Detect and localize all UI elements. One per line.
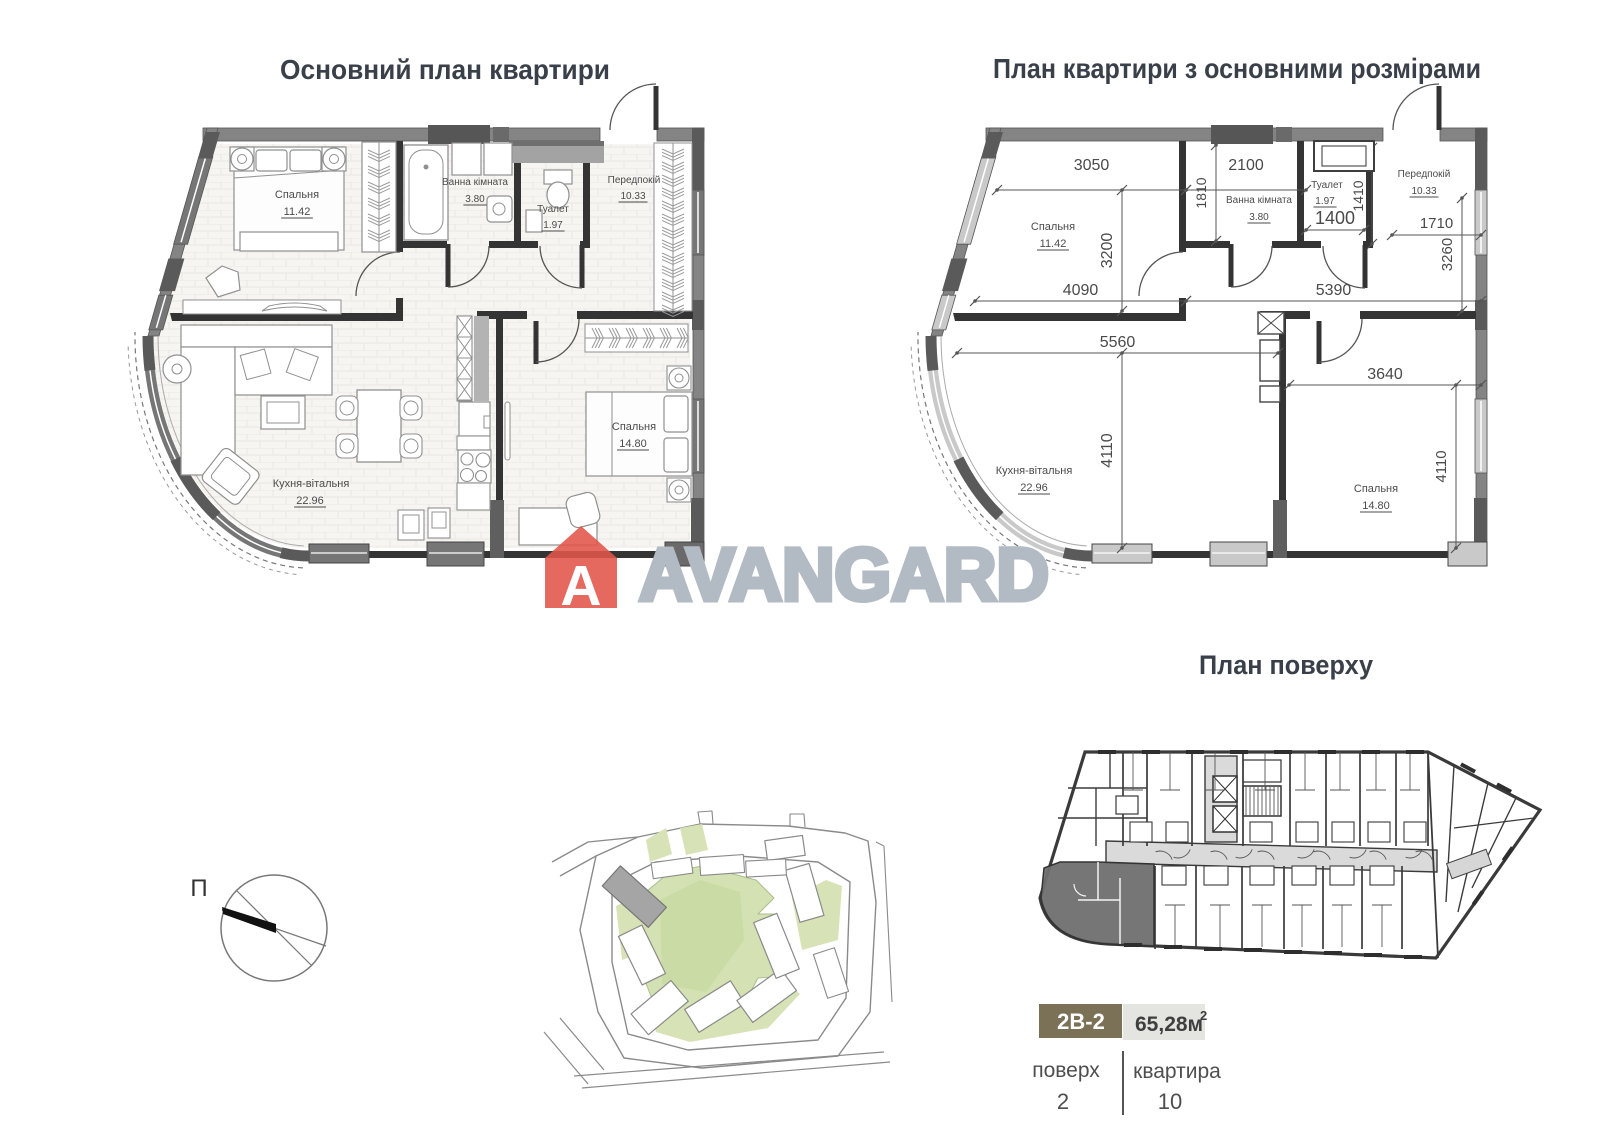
svg-text:11.42: 11.42: [284, 206, 311, 218]
svg-text:П: П: [190, 875, 207, 902]
svg-text:3260: 3260: [1439, 238, 1456, 271]
svg-text:2100: 2100: [1228, 157, 1264, 174]
svg-text:4110: 4110: [1099, 433, 1116, 468]
svg-text:4110: 4110: [1433, 450, 1450, 482]
svg-text:1810: 1810: [1193, 177, 1209, 208]
svg-text:3.80: 3.80: [465, 194, 485, 205]
svg-text:5390: 5390: [1316, 282, 1352, 299]
svg-text:65,28м: 65,28м: [1135, 1013, 1203, 1036]
svg-text:Основний план квартири: Основний план квартири: [280, 54, 610, 85]
svg-text:1410: 1410: [1350, 180, 1366, 211]
svg-text:2В-2: 2В-2: [1057, 1009, 1105, 1034]
svg-text:2: 2: [1200, 1008, 1207, 1023]
svg-text:5560: 5560: [1100, 334, 1136, 351]
svg-text:Кухня-вітальня: Кухня-вітальня: [273, 478, 350, 490]
svg-text:Туалет: Туалет: [1311, 180, 1343, 191]
svg-text:3200: 3200: [1099, 233, 1116, 269]
svg-text:Спальня: Спальня: [612, 421, 656, 433]
svg-text:4090: 4090: [1063, 282, 1099, 299]
svg-text:14.80: 14.80: [1362, 500, 1390, 512]
svg-text:Туалет: Туалет: [537, 204, 569, 215]
svg-text:22.96: 22.96: [296, 495, 324, 507]
svg-text:План квартири з основними розм: План квартири з основними розмірами: [993, 53, 1481, 84]
svg-text:План поверху: План поверху: [1199, 650, 1373, 680]
svg-text:11.42: 11.42: [1040, 238, 1067, 250]
svg-text:1.97: 1.97: [543, 220, 563, 231]
svg-text:Ванна кімната: Ванна кімната: [442, 177, 508, 188]
svg-text:2: 2: [1057, 1089, 1069, 1114]
svg-text:3640: 3640: [1367, 366, 1403, 383]
svg-text:A: A: [560, 554, 601, 618]
svg-text:3050: 3050: [1074, 157, 1110, 174]
svg-text:1.97: 1.97: [1315, 196, 1335, 207]
svg-text:Кухня-вітальня: Кухня-вітальня: [996, 465, 1073, 477]
svg-text:14.80: 14.80: [619, 438, 647, 450]
svg-text:Ванна кімната: Ванна кімната: [1226, 195, 1292, 206]
svg-text:Передпокій: Передпокій: [1398, 169, 1451, 180]
svg-text:22.96: 22.96: [1020, 482, 1048, 494]
svg-text:Спальня: Спальня: [275, 189, 319, 201]
svg-text:3.80: 3.80: [1249, 212, 1269, 223]
svg-text:квартира: квартира: [1133, 1060, 1221, 1083]
svg-text:Спальня: Спальня: [1031, 221, 1075, 233]
svg-text:Спальня: Спальня: [1354, 483, 1398, 495]
svg-text:AVANGARD: AVANGARD: [639, 533, 1049, 616]
svg-text:поверх: поверх: [1032, 1059, 1100, 1082]
svg-text:Передпокій: Передпокій: [608, 175, 661, 186]
svg-text:10.33: 10.33: [620, 191, 645, 202]
svg-text:10.33: 10.33: [1411, 186, 1436, 197]
svg-text:10: 10: [1158, 1089, 1182, 1114]
svg-text:1710: 1710: [1420, 215, 1453, 232]
